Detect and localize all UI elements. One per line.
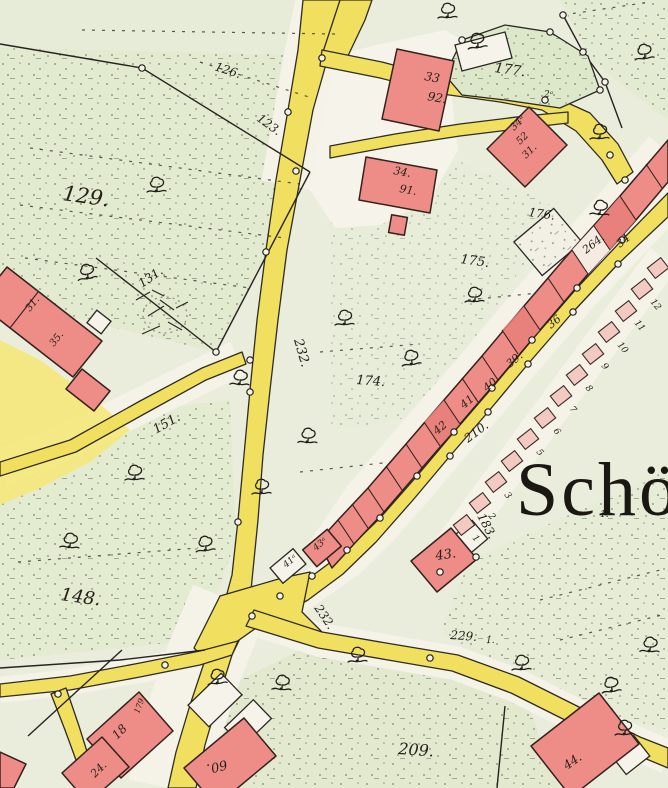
map-label-road: 229. bbox=[449, 628, 478, 644]
map-label-parcel: 1. bbox=[486, 636, 495, 646]
map-label-parcel: 209. bbox=[397, 739, 435, 761]
building-34-annex bbox=[389, 215, 408, 236]
place-name: Schö bbox=[516, 448, 668, 532]
map-label-building: 43. bbox=[433, 546, 457, 564]
map-label-building: 33 bbox=[423, 69, 441, 86]
map-label-parcel: 174. bbox=[356, 373, 386, 390]
map-label-parcel: 2ᵃ bbox=[543, 90, 553, 100]
map-canvas: 129.126.123.131.151.148.174.175.176.177.… bbox=[0, 0, 668, 788]
cadastral-map: 129.126.123.131.151.148.174.175.176.177.… bbox=[0, 0, 668, 788]
